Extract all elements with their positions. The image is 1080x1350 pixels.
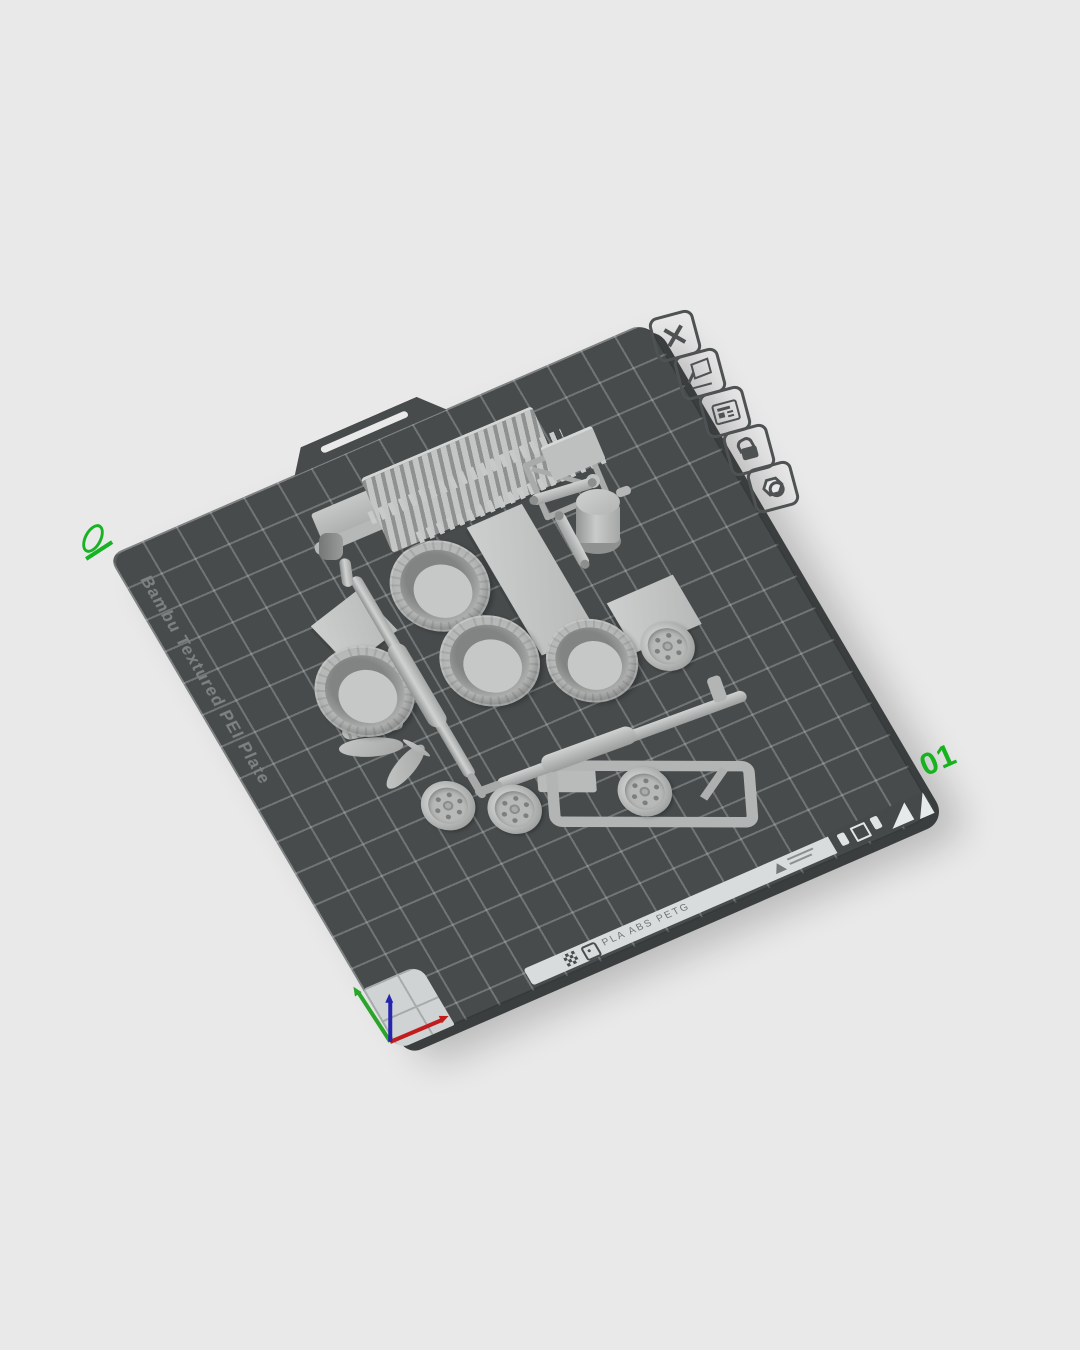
model-grille-end-cylinder[interactable] xyxy=(319,533,343,560)
square-outline-icon xyxy=(849,822,872,842)
axis-z-arrow xyxy=(388,1002,392,1042)
plate-number-label: 01 xyxy=(914,736,962,784)
viewport-3d[interactable]: Bambu Textured PEI Plate PLA ABS PETG xyxy=(0,0,1080,1350)
qr-code-icon xyxy=(562,951,581,967)
hot-surface-warning-icon xyxy=(771,861,787,874)
model-fuel-tank-cap[interactable] xyxy=(576,489,620,515)
label-list-icon xyxy=(711,399,742,426)
nozzle-glyph-icon xyxy=(836,832,850,846)
nozzle-glyph-icon xyxy=(869,815,883,829)
